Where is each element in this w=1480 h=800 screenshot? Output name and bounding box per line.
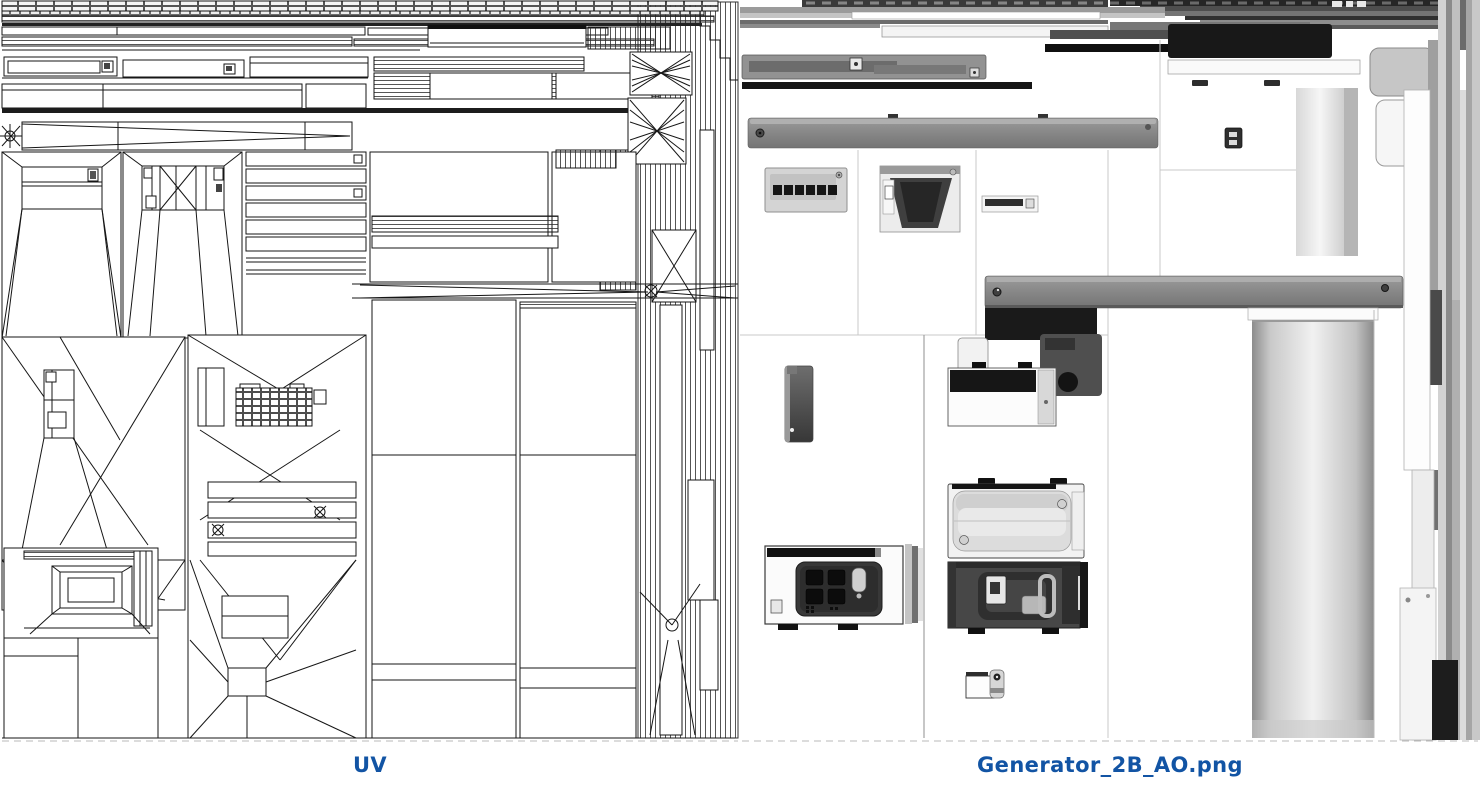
uv-map-figure: UV (0, 0, 740, 800)
ao-caption: Generator_2B_AO.png (740, 753, 1480, 777)
texture-map-comparison: UV (0, 0, 1480, 800)
ao-map-figure: Generator_2B_AO.png (740, 0, 1480, 800)
ao-map-image (740, 0, 1480, 745)
uv-wireframe-layer (0, 1, 738, 738)
uv-caption: UV (0, 753, 740, 777)
uv-map-image (0, 0, 740, 745)
ao-texture-layer (740, 0, 1480, 740)
